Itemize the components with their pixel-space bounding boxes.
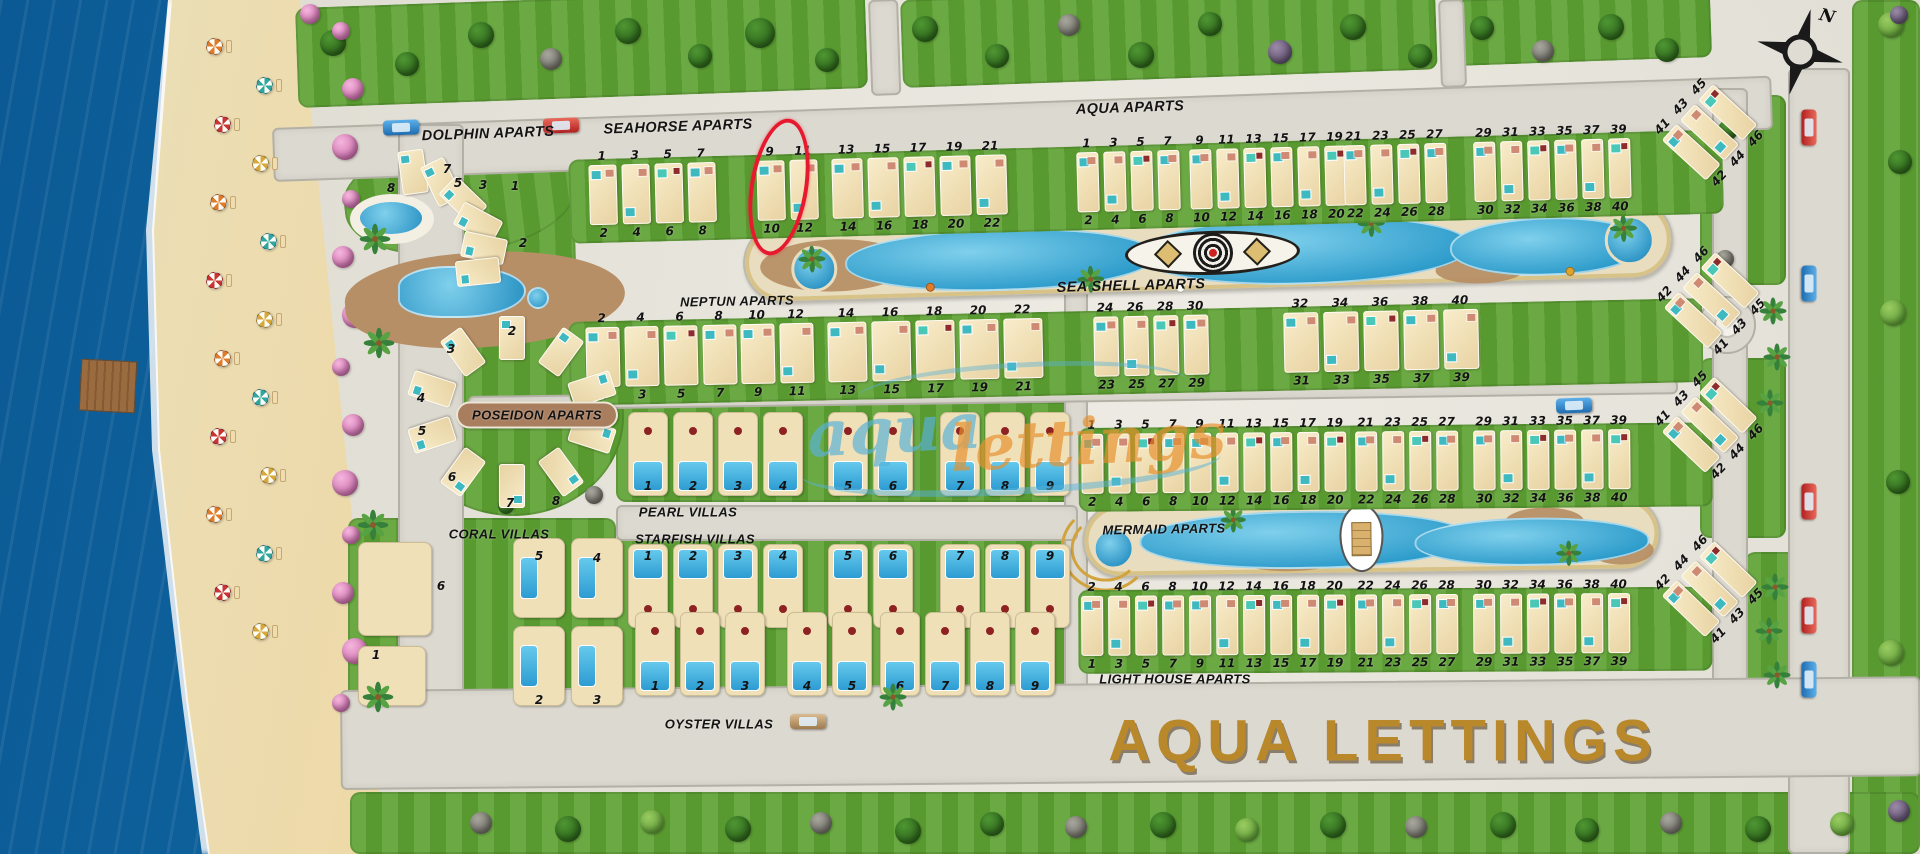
tree	[1128, 42, 1154, 68]
apartment-building	[1436, 594, 1458, 654]
unit-number: 20	[1321, 579, 1348, 594]
unit-number: 1	[1078, 657, 1105, 672]
roof-dot	[734, 427, 742, 435]
beach-umbrella	[206, 506, 223, 523]
unit-number: 16	[1268, 493, 1295, 508]
apartment-building	[827, 322, 867, 383]
palm-tree-icon	[1762, 660, 1792, 690]
sun-lounger	[276, 547, 282, 560]
villa-pool	[578, 645, 596, 687]
tree	[1598, 14, 1624, 40]
apartment-building	[871, 321, 911, 382]
unit-numbers-top: 24262830	[1090, 298, 1210, 316]
roof-dot	[1001, 427, 1009, 435]
unit-numbers-bottom: 911	[739, 384, 817, 401]
apartment-cluster: 1012911	[737, 307, 817, 401]
unit-number: 15	[1267, 656, 1294, 671]
bush	[1888, 800, 1910, 822]
unit-number: 16	[868, 305, 912, 321]
villa: 9	[1030, 412, 1070, 496]
unit-number: 25	[1406, 655, 1433, 670]
villa: 4	[787, 612, 827, 696]
bush	[1065, 816, 1087, 838]
palm-tree-icon	[358, 222, 392, 256]
unit-number: 5	[662, 386, 701, 402]
roof-dot	[741, 627, 749, 635]
apartment-building	[1123, 316, 1149, 377]
villa-number: 7	[941, 479, 979, 493]
unit-number: 12	[776, 307, 815, 323]
apartment-building	[1162, 433, 1185, 493]
apartment-building	[1443, 309, 1479, 370]
unit-number: 4	[620, 225, 653, 241]
palm-tree-icon	[878, 682, 908, 712]
unit-number: 30	[1180, 298, 1210, 314]
bush	[585, 486, 603, 504]
apartment-building	[939, 155, 972, 216]
unit-number: 22	[974, 215, 1010, 231]
unit-number: 8	[387, 181, 395, 195]
unit-number: 27	[1433, 415, 1460, 430]
row-d: 1357246891113151719101214161820212325272…	[1070, 412, 1721, 514]
pool-umbrella	[1566, 267, 1575, 276]
buildings-row	[824, 318, 1045, 383]
unit-number: 14	[1241, 493, 1268, 508]
apartment-cluster: 14161820221315171921	[824, 302, 1046, 399]
apartment-building	[1397, 144, 1421, 205]
apartment-building	[1608, 138, 1632, 199]
bush	[1268, 40, 1292, 64]
apartment-building	[1324, 432, 1347, 492]
apartment-cluster: 2123252722242628	[1352, 415, 1461, 508]
row-e: 2468135710121416182091113151719222426282…	[1070, 577, 1720, 676]
car-red	[1802, 598, 1817, 634]
tree	[1878, 640, 1904, 666]
unit-number: 17	[1294, 656, 1321, 671]
apartment-building	[779, 323, 814, 384]
villa-number: 1	[372, 648, 380, 662]
tree	[1340, 14, 1366, 40]
apartment-building	[1355, 594, 1377, 654]
sun-lounger	[230, 430, 236, 443]
unit-number: 36	[1360, 294, 1400, 310]
roof-dot	[986, 627, 994, 635]
unit-number: 8	[552, 494, 560, 508]
roof-dot	[696, 627, 704, 635]
unit-number: 3	[447, 342, 455, 356]
villa-pool	[520, 645, 538, 687]
villa-number: 1	[629, 479, 667, 493]
unit-number: 13	[828, 142, 864, 158]
sun-lounger	[272, 391, 278, 404]
apartment-building	[1527, 430, 1550, 490]
lawn	[350, 792, 1920, 854]
unit-number: 13	[1240, 656, 1267, 671]
unit-number: 27	[1433, 655, 1460, 670]
unit-number: 29	[1181, 375, 1211, 391]
unit-number: 39	[1605, 654, 1632, 669]
unit-number: 1	[1073, 136, 1100, 152]
unit-numbers-top: 21232527	[1340, 127, 1448, 145]
villa: 8	[970, 612, 1010, 696]
beach-umbrella	[256, 545, 273, 562]
apartment-building	[1081, 596, 1103, 656]
apartment-building	[1270, 147, 1294, 208]
villa: 8	[985, 412, 1025, 496]
apartment-building	[1370, 144, 1394, 205]
villa: 7	[925, 612, 965, 696]
apartment-building	[1189, 149, 1213, 210]
roof-dot	[779, 427, 787, 435]
beach-umbrella	[206, 38, 223, 55]
unit-number: 2	[1079, 495, 1106, 510]
tree	[1888, 150, 1912, 174]
unit-number: 19	[936, 139, 972, 155]
unit-number: 40	[1605, 577, 1632, 592]
unit-number: 6	[1132, 580, 1159, 595]
unit-number: 22	[1000, 302, 1044, 318]
unit-number: 5	[1132, 417, 1159, 432]
unit-number: 25	[1394, 127, 1421, 143]
unit-number: 14	[1240, 579, 1267, 594]
unit-number: 28	[1150, 299, 1180, 315]
unit-number: 33	[1321, 372, 1361, 388]
unit-number: 38	[1579, 490, 1606, 505]
roof-dot	[844, 427, 852, 435]
villa-number: 5	[833, 679, 871, 693]
label-seashell: SEA SHELL APARTS	[1056, 276, 1205, 296]
villa: 9	[1015, 612, 1055, 696]
apartment-building	[621, 164, 651, 225]
unit-number: 7	[1159, 417, 1186, 432]
beach-umbrella	[206, 272, 223, 289]
tree	[980, 812, 1004, 836]
unit-number: 9	[739, 384, 778, 400]
apartment-building	[903, 156, 936, 217]
unit-number: 19	[1321, 416, 1348, 431]
unit-number: 12	[1215, 209, 1242, 225]
sun-lounger	[276, 79, 282, 92]
apartment-cluster: 91113151719101214161820	[1186, 416, 1349, 509]
label-pearl: PEARL VILLAS	[639, 505, 737, 520]
bush	[1890, 6, 1908, 24]
road-top-gap	[1438, 0, 1467, 88]
apartment-building	[1243, 432, 1266, 492]
flower-bush	[300, 4, 320, 24]
villa-number: 2	[674, 479, 712, 493]
apartment-building	[1216, 433, 1239, 493]
unit-number: 28	[1423, 204, 1450, 220]
gold-diamond-icon	[1154, 240, 1182, 268]
buildings-row	[1090, 314, 1211, 376]
apartment-building	[1473, 142, 1497, 203]
tree	[1880, 300, 1906, 326]
unit-number: 18	[912, 304, 956, 320]
unit-number: 13	[826, 383, 870, 399]
unit-number: 32	[1498, 491, 1525, 506]
sun-lounger	[272, 625, 278, 638]
apartment-cluster: 24681357	[1078, 579, 1186, 672]
unit-number: 11	[1213, 132, 1240, 148]
apartment-building	[1527, 140, 1551, 201]
apartment-building	[1183, 314, 1209, 375]
unit-number: 14	[1242, 208, 1269, 224]
gold-diamond-icon	[1243, 237, 1271, 265]
unit-number: 8	[1160, 494, 1187, 509]
buildings-row	[1470, 593, 1632, 654]
palm-tree-icon	[1760, 572, 1790, 602]
label-starfish: STARFISH VILLAS	[635, 532, 755, 547]
unit-number: 8	[1156, 211, 1183, 227]
flower-bush	[332, 470, 358, 496]
tree	[1198, 12, 1222, 36]
apartment-building	[1409, 594, 1431, 654]
unit-number: 3	[1100, 135, 1127, 151]
unit-numbers-top: 91113151719	[1186, 416, 1348, 432]
apartment-building	[624, 326, 659, 387]
unit-number: 14	[830, 219, 866, 235]
unit-number: 26	[1406, 578, 1433, 593]
bush	[540, 48, 562, 70]
unit-number: 13	[1240, 416, 1267, 431]
roof-dot	[644, 427, 652, 435]
villa: 5	[832, 612, 872, 696]
unit-number: 26	[1407, 492, 1434, 507]
car-windshield	[1565, 401, 1583, 411]
unit-numbers-bottom: 22242628	[1353, 492, 1461, 508]
apartment-building	[1297, 595, 1319, 655]
bush	[1660, 812, 1682, 834]
unit-number: 19	[1321, 656, 1348, 671]
unit-number: 23	[1379, 655, 1406, 670]
tree	[468, 22, 494, 48]
unit-number: 20	[1322, 493, 1349, 508]
unit-number: 15	[1267, 416, 1294, 431]
apartment-building	[1003, 318, 1043, 379]
boat-deck	[1351, 522, 1371, 556]
beach-umbrella	[252, 389, 269, 406]
sun-lounger	[226, 508, 232, 521]
buildings-row	[1470, 138, 1634, 202]
apartment-cluster: 2123252722242628	[1340, 127, 1450, 222]
unit-number: 8	[686, 223, 719, 239]
villa: 1	[635, 612, 675, 696]
beach-umbrella	[256, 311, 273, 328]
unit-number: 4	[1102, 212, 1129, 228]
unit-number: 2	[1075, 213, 1102, 229]
unit-number: 14	[824, 306, 868, 322]
unit-number: 5	[1132, 657, 1159, 672]
apartment-cluster: 303234363840293133353739	[1470, 577, 1632, 670]
buildings-row	[1470, 429, 1633, 490]
beach-umbrella	[210, 194, 227, 211]
car-blue	[1556, 397, 1593, 413]
tree	[1235, 818, 1259, 842]
pool-umbrella	[926, 283, 935, 292]
villa-number: 6	[874, 479, 912, 493]
apartment-building	[1324, 595, 1346, 655]
unit-number: 15	[870, 382, 914, 398]
buildings-row	[1073, 150, 1183, 213]
tree	[395, 52, 419, 76]
unit-number: 23	[1379, 415, 1406, 430]
tree	[640, 810, 664, 834]
car-red	[1802, 110, 1817, 146]
apartment-building	[1409, 431, 1432, 491]
bush	[1405, 816, 1427, 838]
unit-number: 34	[1525, 491, 1552, 506]
unit-number: 15	[1267, 131, 1294, 147]
unit-numbers-top: 1012	[737, 307, 815, 324]
villa-number: 3	[719, 549, 757, 563]
unit-number: 11	[1213, 417, 1240, 432]
villa-number: 9	[1016, 679, 1054, 693]
unit-number: 7	[1159, 656, 1186, 671]
dartboard-icon	[1192, 232, 1233, 273]
apartment-building	[1581, 429, 1604, 489]
car-red	[1802, 484, 1817, 520]
unit-number: 25	[1406, 415, 1433, 430]
buildings-row	[1340, 143, 1450, 206]
road-top-gap	[868, 0, 901, 96]
apartment-building	[1216, 595, 1238, 655]
roof-dot	[689, 427, 697, 435]
unit-number: 35	[1551, 414, 1578, 429]
villa: 2	[680, 612, 720, 696]
label-coral: CORAL VILLAS	[449, 527, 550, 542]
tree	[1655, 38, 1679, 62]
villa-number: 3	[719, 479, 757, 493]
tree	[985, 44, 1009, 68]
villa-number: 4	[764, 479, 802, 493]
unit-number: 3	[618, 148, 651, 164]
roof-dot	[956, 427, 964, 435]
beach-umbrella	[256, 77, 273, 94]
unit-number: 8	[1159, 579, 1186, 594]
unit-number: 21	[1340, 129, 1367, 145]
villa-number: 7	[926, 679, 964, 693]
unit-number: 33	[1524, 654, 1551, 669]
villa-number: 8	[986, 479, 1024, 493]
unit-number: 37	[1578, 654, 1605, 669]
villa-number: 5	[535, 549, 543, 563]
apartment-building	[1608, 593, 1630, 653]
unit-number: 33	[1524, 124, 1551, 140]
sun-lounger	[234, 586, 240, 599]
palm-tree-icon	[362, 326, 396, 360]
unit-number: 6	[660, 309, 699, 325]
villa-number: 4	[788, 679, 826, 693]
villa: 5	[828, 412, 868, 496]
unit-number: 7	[1154, 134, 1181, 150]
car-blue	[383, 119, 420, 135]
villa-number: 1	[629, 549, 667, 563]
buildings-row	[1186, 595, 1348, 656]
unit-number: 29	[1470, 414, 1497, 429]
unit-number: 31	[1497, 125, 1524, 141]
lawn	[900, 0, 1438, 88]
unit-numbers-bottom: 2468	[1079, 494, 1187, 510]
unit-number: 3	[1105, 417, 1132, 432]
unit-number: 6	[1129, 211, 1156, 227]
unit-number: 7	[701, 385, 740, 401]
sun-lounger	[272, 157, 278, 170]
sun-lounger	[234, 118, 240, 131]
apartment-building	[1473, 594, 1495, 654]
apartment-cluster: 13572468	[585, 146, 719, 241]
unit-number: 21	[1352, 415, 1379, 430]
apartment-building	[654, 163, 684, 224]
apartment-building	[1355, 431, 1378, 491]
beach-umbrella	[252, 155, 269, 172]
label-neptun: NEPTUN APARTS	[680, 293, 794, 310]
apartment-cluster: 32343638403133353739	[1280, 293, 1482, 389]
roof-dot	[1046, 427, 1054, 435]
villa: 7	[940, 412, 980, 496]
unit-number: 10	[1188, 210, 1215, 226]
villa-number: 1	[636, 679, 674, 693]
villa-number: 9	[1031, 479, 1069, 493]
tree	[688, 44, 712, 68]
unit-number: 9	[1186, 417, 1213, 432]
unit-number: 31	[1497, 655, 1524, 670]
palm-tree-icon	[1754, 616, 1784, 646]
sun-lounger	[276, 313, 282, 326]
unit-number: 6	[1133, 494, 1160, 509]
unit-number: 29	[1470, 655, 1497, 670]
label-lighthouse: LIGHT HOUSE APARTS	[1099, 672, 1250, 687]
unit-number: 16	[1269, 208, 1296, 224]
villa-number: 3	[593, 693, 601, 707]
palm-tree-icon	[1758, 296, 1788, 326]
car-tan	[790, 714, 826, 729]
unit-number: 34	[1526, 201, 1553, 217]
resort-map: aqua lettings AQUA LETTINGS N 1357246891…	[0, 0, 1920, 854]
villa-pool	[520, 557, 538, 599]
unit-number: 4	[1105, 580, 1132, 595]
unit-number: 34	[1524, 577, 1551, 592]
roof-dot	[779, 605, 787, 613]
unit-number: 5	[651, 147, 684, 163]
apartment-cluster: 13572468	[1078, 417, 1187, 510]
flower-bush	[332, 22, 350, 40]
unit-number: 39	[1605, 122, 1632, 138]
villa: 2	[673, 412, 713, 496]
label-mermaid: MERMAID APARTS	[1102, 520, 1225, 537]
apartment-building	[915, 320, 955, 381]
car-windshield	[1805, 119, 1814, 137]
buildings-row	[1186, 432, 1349, 493]
villa-number: 5	[829, 479, 867, 493]
unit-number: 13	[1240, 131, 1267, 147]
bush	[1058, 14, 1080, 36]
label-oyster: OYSTER VILLAS	[665, 717, 774, 732]
apartment-building	[588, 165, 618, 226]
villa-number: 8	[971, 679, 1009, 693]
unit-number: 8	[699, 308, 738, 324]
unit-number: 5	[418, 424, 426, 438]
beach-umbrella	[214, 584, 231, 601]
buildings-row	[828, 154, 1010, 219]
unit-number: 37	[1578, 413, 1605, 428]
buildings-row	[737, 323, 816, 385]
car-windshield	[799, 717, 817, 726]
unit-numbers-top: 1357	[1078, 417, 1186, 433]
apartment-cluster: 2224262821232527	[1352, 578, 1460, 671]
unit-number: 18	[902, 217, 938, 233]
unit-number: 22	[1352, 578, 1379, 593]
unit-number: 27	[1151, 376, 1181, 392]
